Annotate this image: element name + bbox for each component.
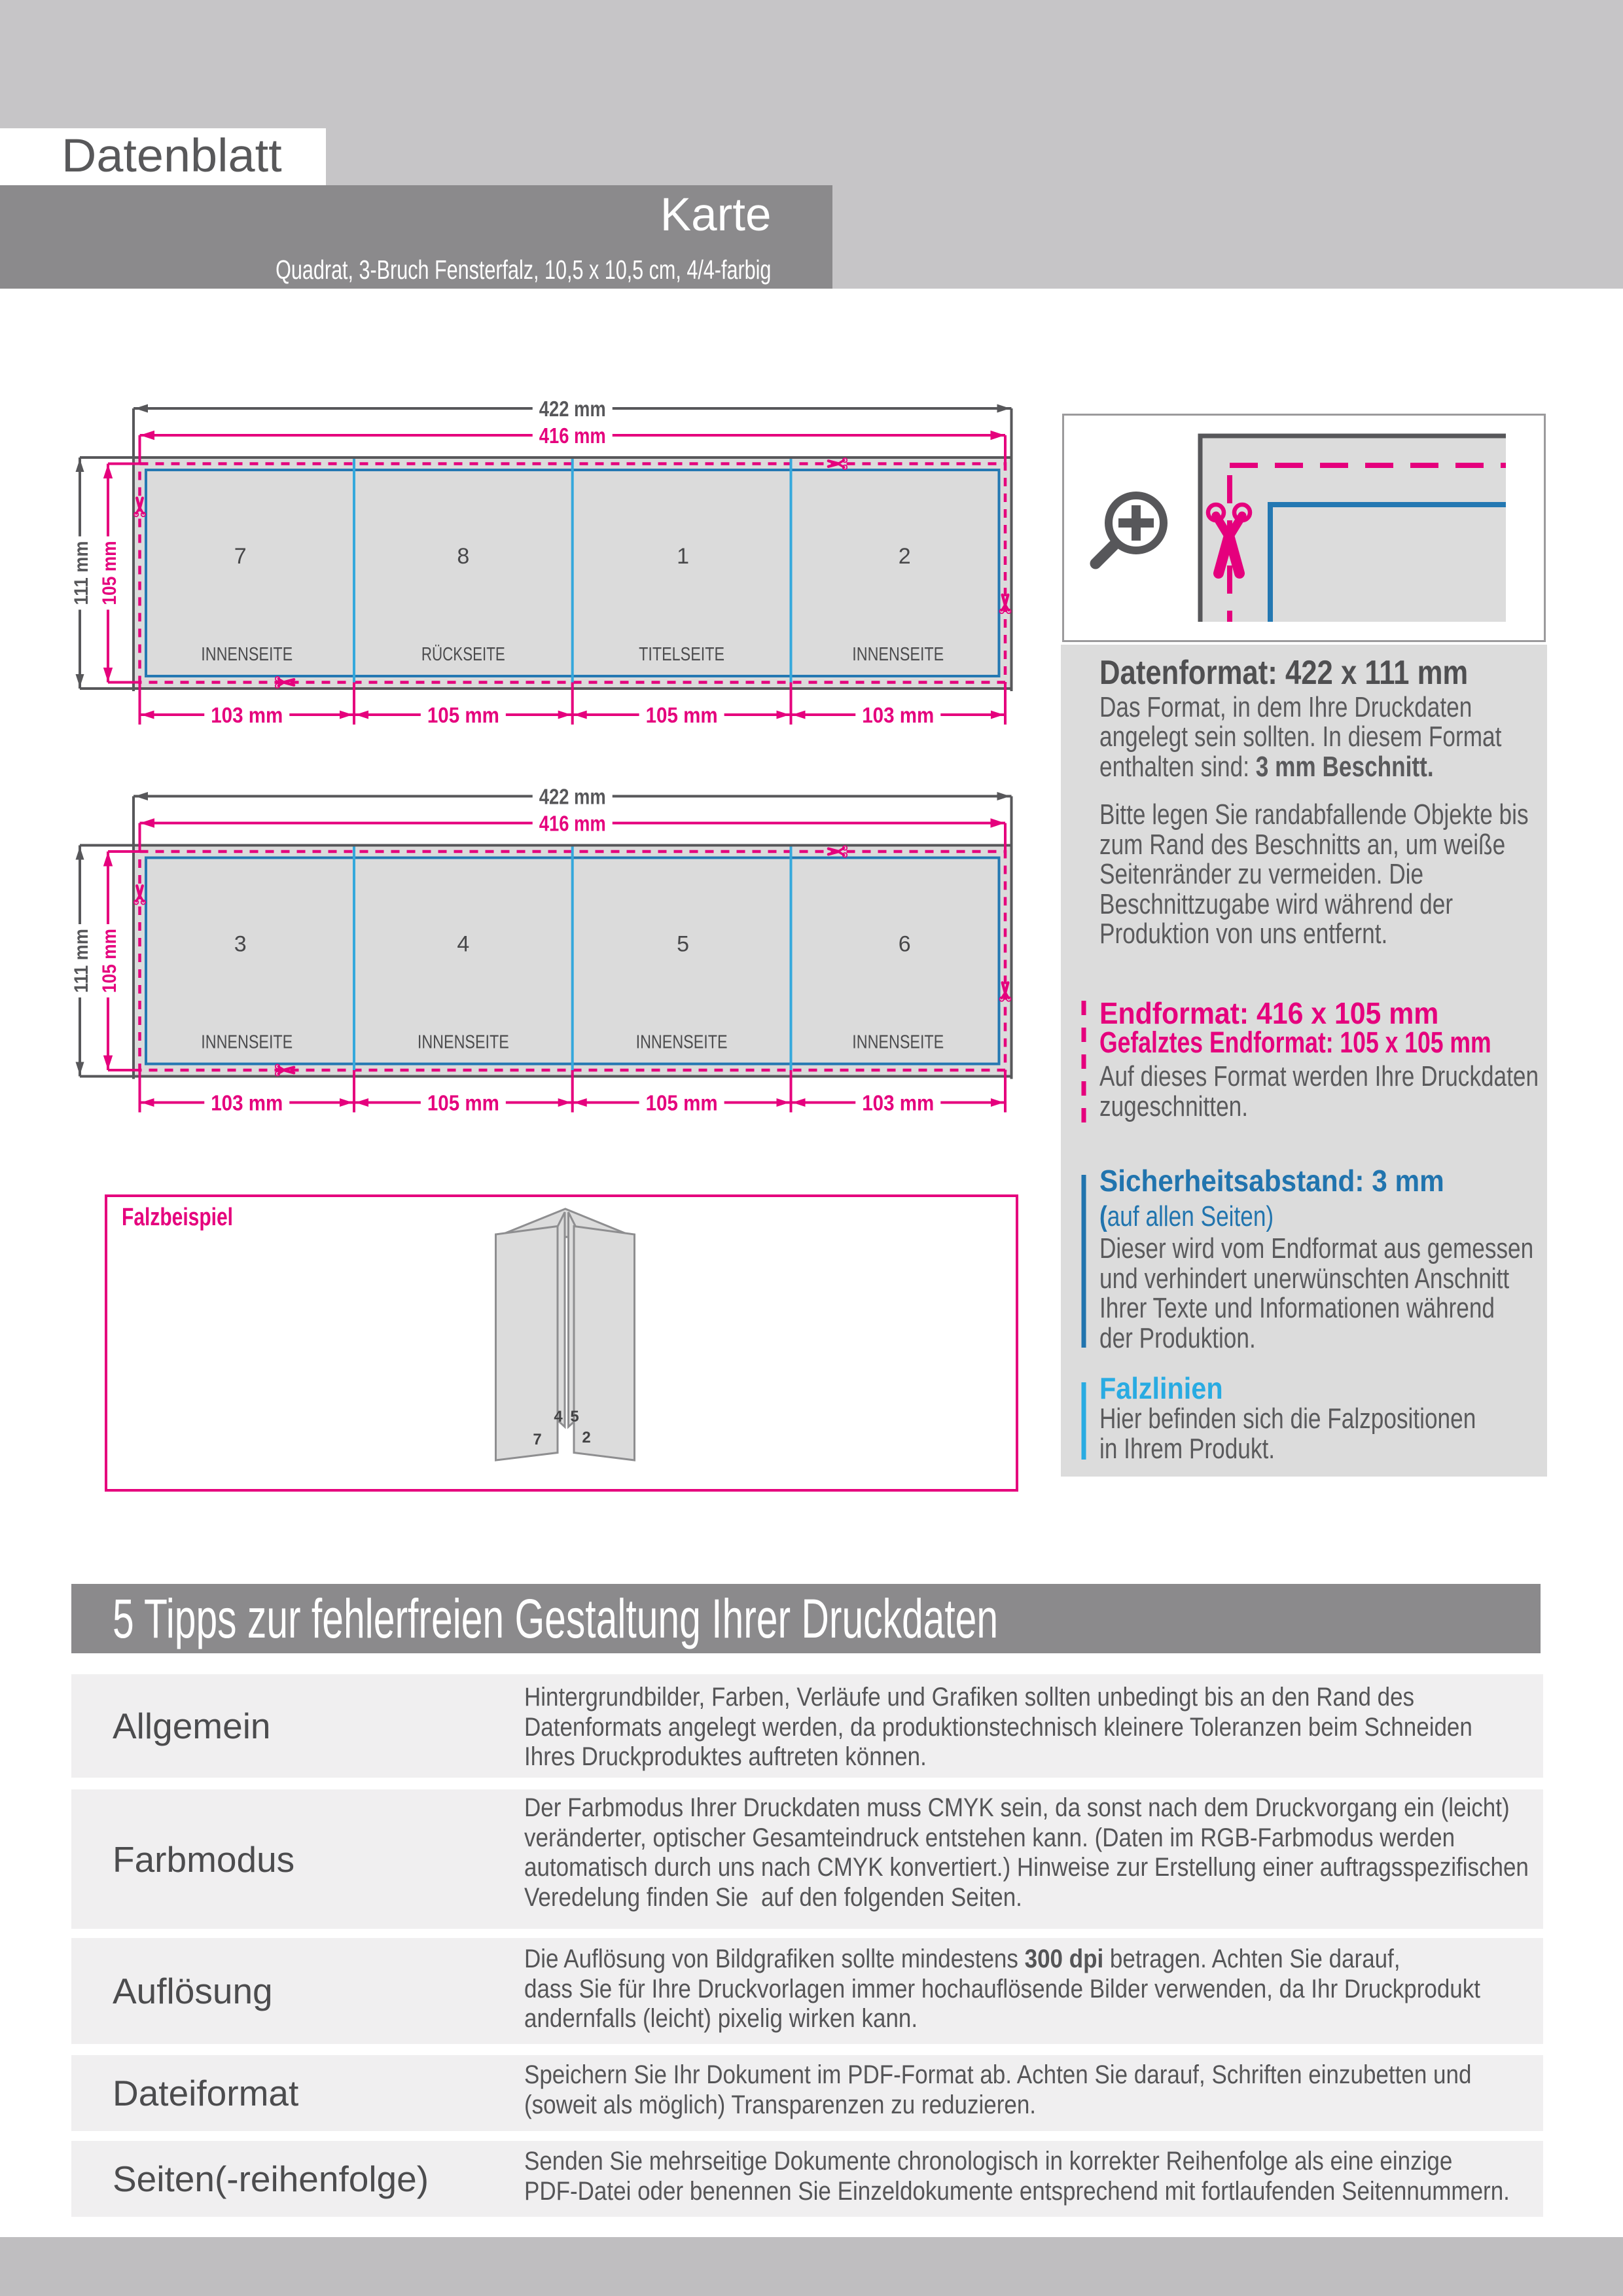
svg-text:105 mm: 105 mm (427, 1091, 499, 1115)
svg-text:422 mm: 422 mm (539, 397, 606, 421)
svg-text:TITELSEITE: TITELSEITE (639, 644, 724, 665)
svg-text:416 mm: 416 mm (539, 812, 606, 836)
svg-text:422 mm: 422 mm (539, 785, 606, 809)
svg-text:4: 4 (554, 1408, 563, 1426)
svg-text:103 mm: 103 mm (862, 703, 934, 727)
svg-text:INNENSEITE: INNENSEITE (418, 1032, 509, 1053)
svg-text:5: 5 (677, 932, 689, 957)
svg-text:105 mm: 105 mm (99, 541, 120, 605)
svg-text:103 mm: 103 mm (862, 1091, 934, 1115)
svg-text:5: 5 (570, 1408, 579, 1426)
svg-text:RÜCKSEITE: RÜCKSEITE (421, 644, 505, 665)
svg-text:1: 1 (677, 544, 689, 569)
svg-text:7: 7 (234, 544, 247, 569)
svg-text:105 mm: 105 mm (646, 703, 718, 727)
svg-text:INNENSEITE: INNENSEITE (852, 1032, 944, 1053)
svg-text:INNENSEITE: INNENSEITE (201, 1032, 293, 1053)
svg-text:4: 4 (457, 932, 469, 957)
svg-text:105 mm: 105 mm (646, 1091, 718, 1115)
svg-text:8: 8 (457, 544, 469, 569)
svg-text:2: 2 (582, 1429, 590, 1446)
svg-text:3: 3 (234, 932, 247, 957)
svg-text:105 mm: 105 mm (99, 929, 120, 993)
svg-text:111 mm: 111 mm (71, 929, 92, 993)
svg-text:INNENSEITE: INNENSEITE (201, 644, 293, 665)
svg-text:105 mm: 105 mm (427, 703, 499, 727)
svg-text:INNENSEITE: INNENSEITE (852, 644, 944, 665)
svg-text:6: 6 (899, 932, 911, 957)
svg-text:103 mm: 103 mm (211, 1091, 283, 1115)
svg-text:416 mm: 416 mm (539, 423, 606, 448)
svg-text:Falzbeispiel: Falzbeispiel (122, 1204, 233, 1231)
svg-text:111 mm: 111 mm (71, 541, 92, 605)
svg-text:2: 2 (899, 544, 911, 569)
svg-text:103 mm: 103 mm (211, 703, 283, 727)
svg-text:7: 7 (533, 1431, 541, 1448)
svg-text:INNENSEITE: INNENSEITE (636, 1032, 728, 1053)
